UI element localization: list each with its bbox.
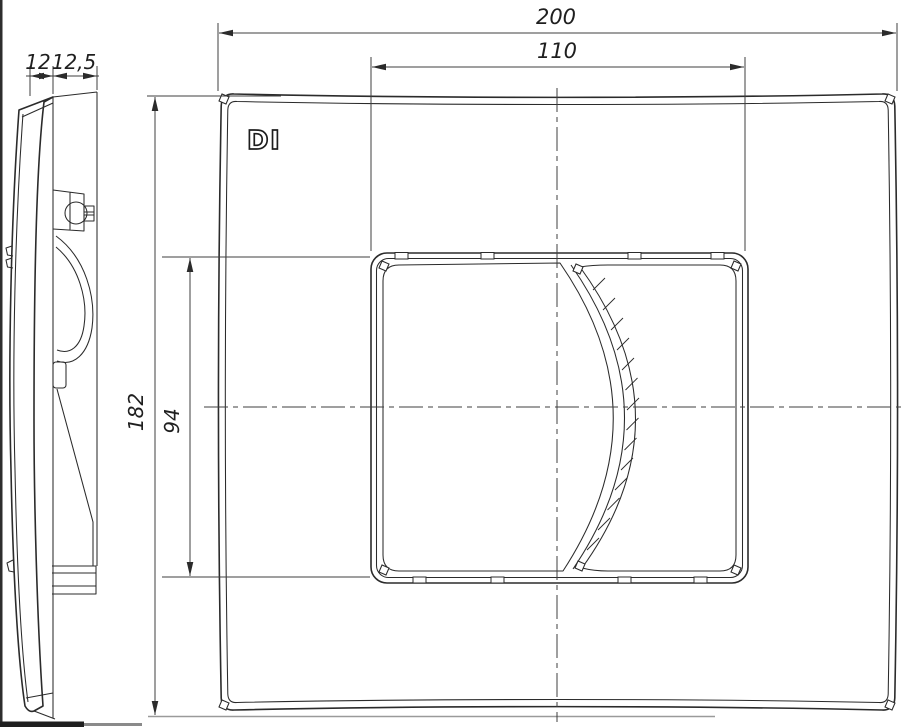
notch [711,253,724,260]
corner-chip [379,565,389,575]
corner-chip [885,94,895,104]
plate-outer-edge [218,94,897,710]
clip-arc-outer [56,236,93,362]
dim-profile-thickness: 12 [25,50,50,74]
brand-logo: DI [247,126,281,156]
bottom-left-border [0,722,84,727]
extension-lines [30,23,897,577]
frame-recess [377,259,743,578]
bottom-border-fade [84,723,142,726]
corner-chip [885,700,895,710]
plate-inner-edge [225,101,890,702]
notch [694,577,707,583]
frame-notches [395,253,724,584]
dimension-lines [26,33,896,715]
panel-profile-outline [10,97,53,711]
dim-plate-width: 200 [536,5,576,29]
panel-top-inner-edge [22,103,53,117]
dim-button-window-width: 110 [537,39,577,63]
corner-chip [379,261,389,271]
dimension-arrows [30,30,896,715]
corner-chip [573,264,583,274]
wall-reference-line [53,92,97,566]
flush-buttons [379,261,741,575]
left-border [0,0,3,727]
front-view: DI [218,94,897,710]
notch [618,577,631,583]
frame-corner-details [379,261,741,575]
dim-button-window-height: 94 [160,408,184,433]
panel-bottom-slant [34,711,55,719]
lower-tab [53,362,66,388]
frame-outer [371,253,748,583]
button-window-frame [371,253,748,584]
small-flush-button [383,263,613,571]
centerlines [204,88,906,722]
dim-profile-depth: 12,5 [52,50,97,74]
corner-chip [575,561,585,571]
fixing-bracket [53,190,84,231]
clip-arc-inner [56,247,85,351]
panel-bottom-face [26,693,53,698]
foot-diagonal [57,389,93,566]
drawing-canvas: DI 200 110 12 12,5 182 [0,0,909,727]
notch [413,577,426,583]
notch [395,253,408,260]
notch [491,577,504,583]
technical-drawing-svg: DI 200 110 12 12,5 182 [0,0,909,727]
notch [481,253,494,260]
dimensions: 200 110 12 12,5 182 94 [25,5,897,715]
dim-plate-height: 182 [124,393,148,431]
side-profile-view [6,92,97,719]
foot-bracket [52,566,96,594]
divider-arc [571,265,625,569]
notch [628,253,641,260]
